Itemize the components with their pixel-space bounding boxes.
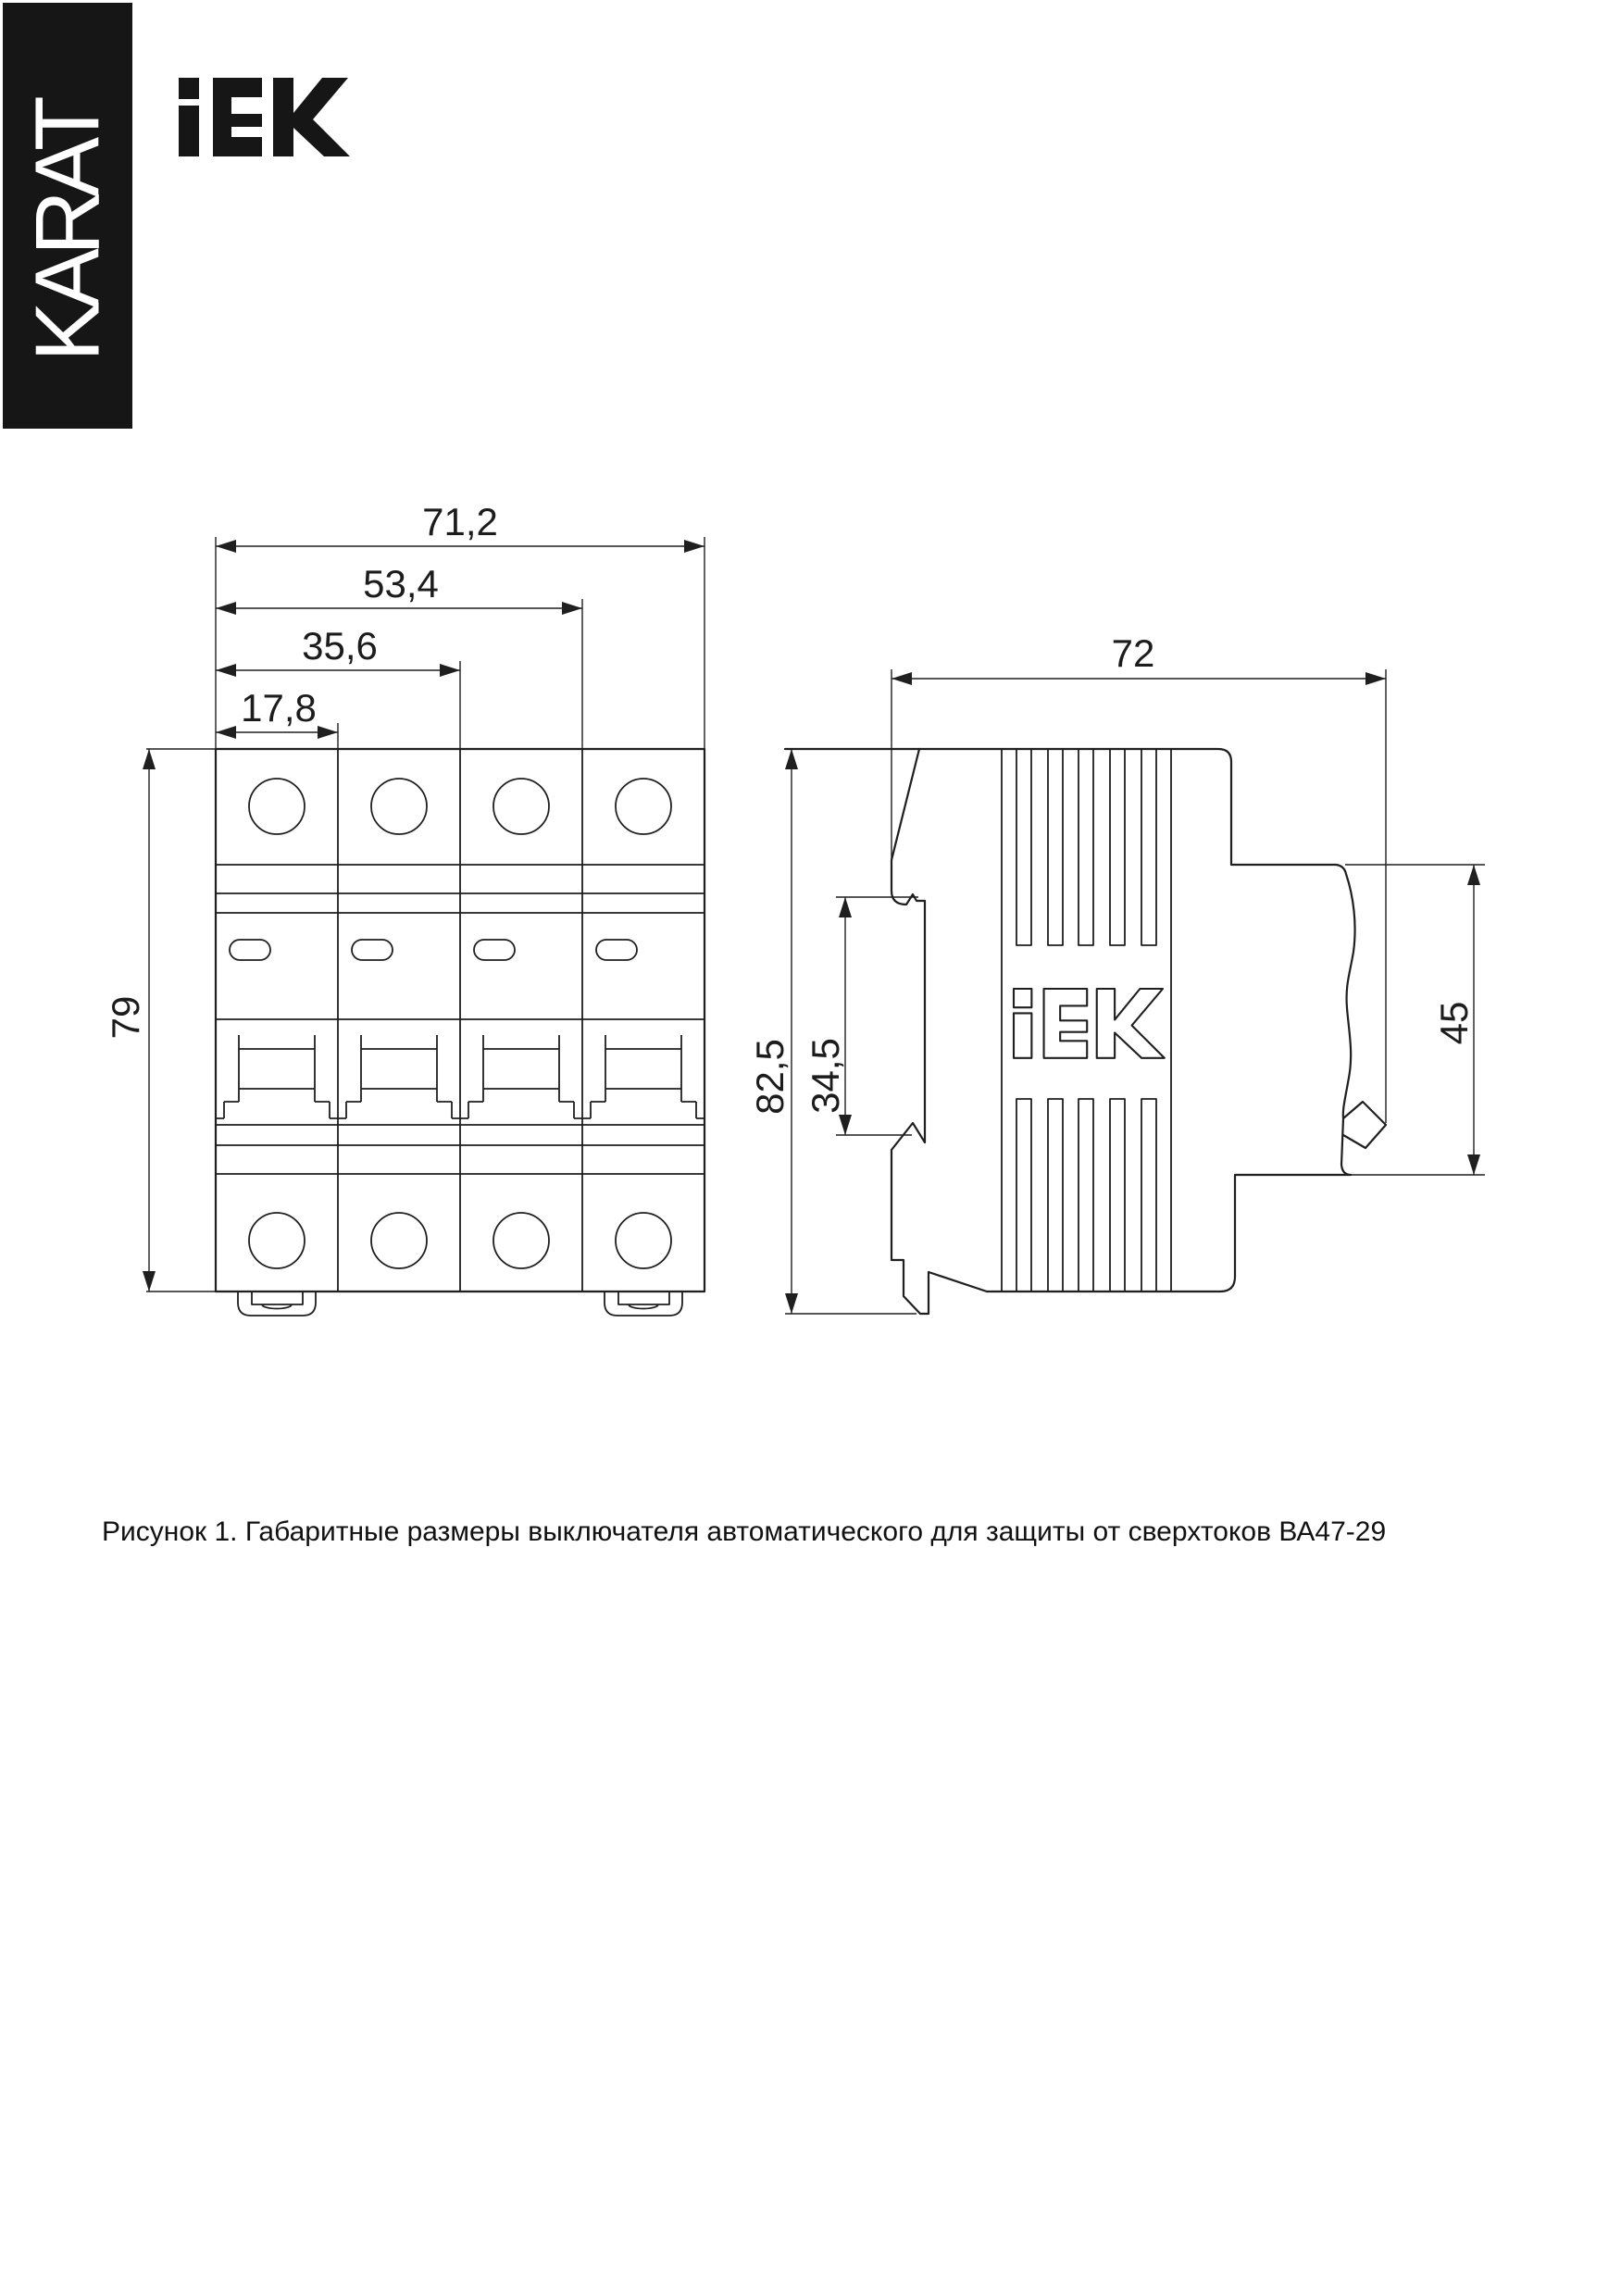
dim-width-2-poles: 35,6 bbox=[302, 624, 378, 668]
dim-width-3-poles: 53,4 bbox=[363, 562, 439, 605]
dimension-drawing: 71,2 53,4 35,6 17,8 79 bbox=[0, 0, 1621, 2296]
side-dimensions: 72 82,5 34,5 45 bbox=[748, 631, 1485, 1314]
din-side-profile bbox=[892, 749, 987, 1314]
terminal-screw-top bbox=[249, 779, 305, 834]
dim-lower-depth: 45 bbox=[1432, 1002, 1476, 1045]
dim-width-1-pole: 17,8 bbox=[241, 686, 317, 730]
front-dimensions: 71,2 53,4 35,6 17,8 79 bbox=[104, 500, 705, 1291]
latch-tooth bbox=[1343, 1102, 1386, 1148]
vent-slots-upper bbox=[1016, 749, 1156, 945]
dim-din-rail-height: 34,5 bbox=[804, 1038, 847, 1114]
front-view bbox=[216, 749, 705, 1316]
dim-total-height: 82,5 bbox=[748, 1039, 792, 1115]
document-page: KARAT bbox=[0, 0, 1621, 2296]
dim-total-width: 71,2 bbox=[422, 500, 498, 543]
toggle-handle bbox=[216, 1035, 338, 1118]
dim-depth: 72 bbox=[1112, 631, 1155, 675]
pole-detail bbox=[216, 779, 338, 1268]
indicator-window bbox=[230, 940, 270, 960]
vent-slots-lower bbox=[1016, 1099, 1156, 1291]
dim-front-height: 79 bbox=[104, 996, 147, 1040]
terminal-screw-bottom bbox=[249, 1213, 305, 1268]
side-view bbox=[785, 749, 1386, 1314]
iek-embossed-logo-icon bbox=[1014, 989, 1165, 1058]
pole-dividers bbox=[338, 749, 582, 1291]
figure-caption: Рисунок 1. Габаритные размеры выключател… bbox=[102, 1516, 1490, 1548]
din-clip bbox=[238, 1291, 316, 1316]
